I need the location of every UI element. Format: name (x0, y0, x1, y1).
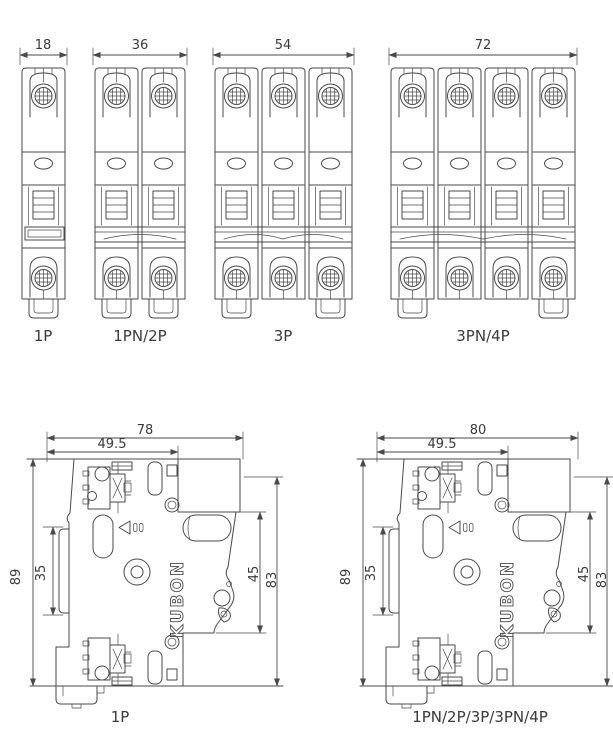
din-clip (222, 299, 251, 318)
dimensions: 80 49.5 89 35 45 83 (339, 423, 613, 686)
pole-config-label: 3PN/4P (456, 327, 509, 345)
handle-tie-bar (215, 227, 352, 242)
pole-module (142, 68, 185, 299)
handle-tie-bar (391, 227, 575, 242)
pole-config-label: 1P (34, 327, 53, 345)
side-view-1p: KUBON 78 49.5 89 35 45 83 1P (0, 417, 300, 733)
din-clip (398, 299, 427, 318)
side-body (357, 459, 613, 708)
pole-module (485, 68, 528, 299)
overall-width-label: 80 (470, 423, 487, 438)
dimensions: 78 49.5 89 35 45 83 (9, 423, 283, 686)
body-height-label: 83 (265, 572, 280, 589)
technical-drawing-page: 18 1P 36 1PN/2P 54 (0, 0, 613, 753)
front-view-2p: 36 1PN/2P (91, 33, 189, 378)
side-view-multipole: KUBON 80 49.5 89 35 45 83 1PN/2P/3P/3PN/… (330, 417, 613, 733)
handle-tie-bar (95, 227, 185, 242)
din-clip (29, 299, 58, 318)
pole-config-label: 3P (274, 327, 293, 345)
pole-module (532, 68, 575, 299)
front-view-3p: 54 3P (211, 33, 356, 378)
din-clip (102, 299, 131, 318)
terminal-span-label: 45 (577, 566, 592, 583)
brand-logo-text: KUBON (498, 560, 518, 638)
pole-module (309, 68, 352, 299)
brand-logo-text: KUBON (168, 560, 188, 638)
pole-module (95, 68, 138, 299)
pole-module (262, 68, 305, 299)
width-dimension-label: 18 (35, 38, 52, 53)
width-dimension-label: 36 (132, 38, 149, 53)
din-clip (316, 299, 345, 318)
front-view-4p: 72 3PN/4P (387, 33, 579, 378)
rail-recess-label: 35 (34, 565, 49, 582)
overall-height-label: 89 (339, 569, 354, 586)
body-height-label: 83 (595, 572, 610, 589)
overall-width-label: 78 (137, 423, 154, 438)
pole-config-label: 1PN/2P (113, 327, 166, 345)
width-dimension-label: 72 (475, 38, 492, 53)
pole-module (22, 68, 65, 299)
pole-module (215, 68, 258, 299)
front-view-1p: 18 1P (18, 33, 69, 378)
pole-config-label: 1P (111, 708, 130, 726)
width-dimension-label: 54 (275, 38, 292, 53)
din-clip (539, 299, 568, 318)
pole-module (391, 68, 434, 299)
front-width-label: 49.5 (428, 437, 457, 452)
handle-tie-bar (25, 227, 64, 240)
terminal-span-label: 45 (247, 566, 262, 583)
overall-height-label: 89 (9, 569, 24, 586)
rail-recess-label: 35 (364, 565, 379, 582)
side-body (27, 459, 283, 708)
front-width-label: 49.5 (98, 437, 127, 452)
pole-module (438, 68, 481, 299)
din-clip (149, 299, 178, 318)
pole-config-label: 1PN/2P/3P/3PN/4P (412, 708, 548, 726)
